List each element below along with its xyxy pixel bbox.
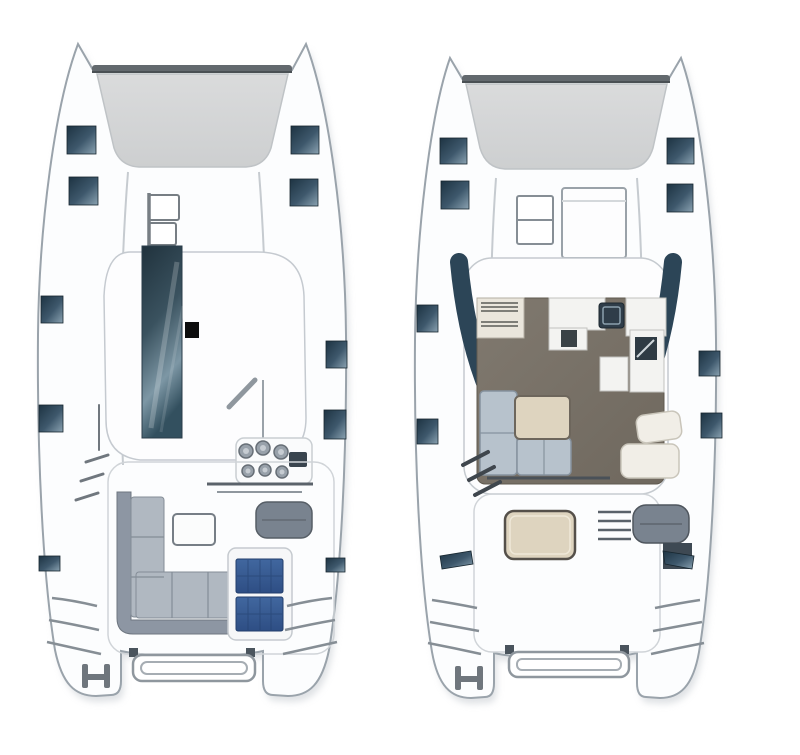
cockpit-table bbox=[505, 511, 575, 559]
hull-window bbox=[39, 556, 60, 571]
hull-window bbox=[417, 305, 438, 332]
hull-window bbox=[701, 413, 722, 438]
catamaran-floorplan-image bbox=[0, 0, 800, 755]
hull-window bbox=[417, 419, 438, 444]
hull-window bbox=[441, 181, 469, 209]
instrument-panel bbox=[289, 452, 307, 467]
galley-counter bbox=[549, 298, 605, 330]
hull-window bbox=[324, 410, 346, 439]
davit-frame bbox=[509, 652, 629, 677]
island-module bbox=[561, 330, 577, 347]
hull-window bbox=[699, 351, 720, 376]
foredeck-hatch bbox=[149, 193, 179, 247]
cockpit-sofa-seat bbox=[136, 572, 243, 618]
deck-plan-view bbox=[38, 44, 349, 702]
davit-frame bbox=[133, 655, 255, 681]
forward-sunpad bbox=[562, 188, 626, 258]
trampoline bbox=[97, 74, 288, 167]
hull-window bbox=[67, 126, 96, 154]
solar-panel-unit bbox=[228, 548, 292, 640]
bow-crossbeam bbox=[92, 65, 292, 73]
dinette-table bbox=[515, 396, 570, 439]
hull-window bbox=[440, 138, 467, 164]
hull-window bbox=[326, 341, 347, 368]
hull-window bbox=[667, 184, 693, 212]
hull-window bbox=[290, 179, 318, 206]
hull-window bbox=[326, 558, 345, 572]
catamaran-floorplan-figure bbox=[0, 0, 800, 755]
trampoline bbox=[466, 84, 667, 169]
hull-window bbox=[39, 405, 63, 432]
hull-window bbox=[69, 177, 98, 205]
stove-counter bbox=[477, 298, 524, 338]
hull-window bbox=[667, 138, 694, 164]
hull-window bbox=[41, 296, 63, 323]
mast-step bbox=[185, 322, 199, 338]
hull-window bbox=[291, 126, 319, 154]
interior-plan-view bbox=[415, 58, 722, 704]
saloon bbox=[459, 258, 683, 495]
nav-counter bbox=[600, 357, 628, 391]
dinette bbox=[480, 391, 571, 475]
coachroof-body bbox=[104, 252, 306, 460]
coachroof bbox=[104, 246, 306, 460]
cockpit-table bbox=[173, 514, 215, 545]
bow-crossbeam bbox=[462, 75, 670, 83]
